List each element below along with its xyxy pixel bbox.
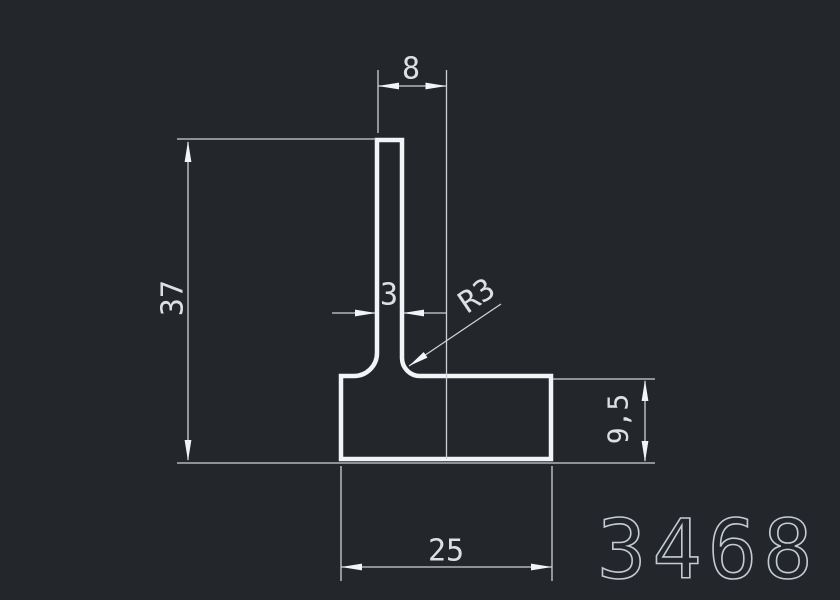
- dim-base-width-group: 25: [341, 466, 552, 581]
- part-number: 3468: [597, 503, 818, 598]
- arrowhead-up: [185, 141, 192, 162]
- arrowhead-up: [642, 380, 649, 401]
- dim-label-overall-height: 37: [156, 280, 191, 316]
- arrowhead-down: [642, 441, 649, 462]
- dim-label-base-width: 25: [428, 534, 464, 569]
- dim-fillet-radius-group: R3: [409, 271, 502, 366]
- cad-canvas: 8 37 3 R3 9,5 25 3468: [0, 0, 840, 600]
- dim-overall-height-group: 37: [156, 139, 656, 463]
- dim-label-top-width: 8: [402, 52, 420, 87]
- arrowhead-right: [531, 564, 552, 571]
- arrowhead-left: [341, 564, 362, 571]
- arrowhead-pointing-right: [355, 310, 376, 317]
- dim-label-base-height: 9,5: [602, 394, 635, 445]
- dim-label-stem-thickness: 3: [380, 278, 398, 313]
- dim-base-height-group: 9,5: [553, 379, 655, 462]
- leader-arrowhead: [409, 352, 428, 366]
- arrowhead-left: [378, 83, 399, 90]
- arrowhead-down: [185, 440, 192, 461]
- dim-stem-thickness-group: 3: [332, 278, 447, 317]
- arrowhead-pointing-left: [403, 310, 424, 317]
- dim-top-width-group: 8: [378, 52, 447, 460]
- dim-label-fillet-radius: R3: [452, 271, 502, 320]
- arrowhead-right: [426, 83, 447, 90]
